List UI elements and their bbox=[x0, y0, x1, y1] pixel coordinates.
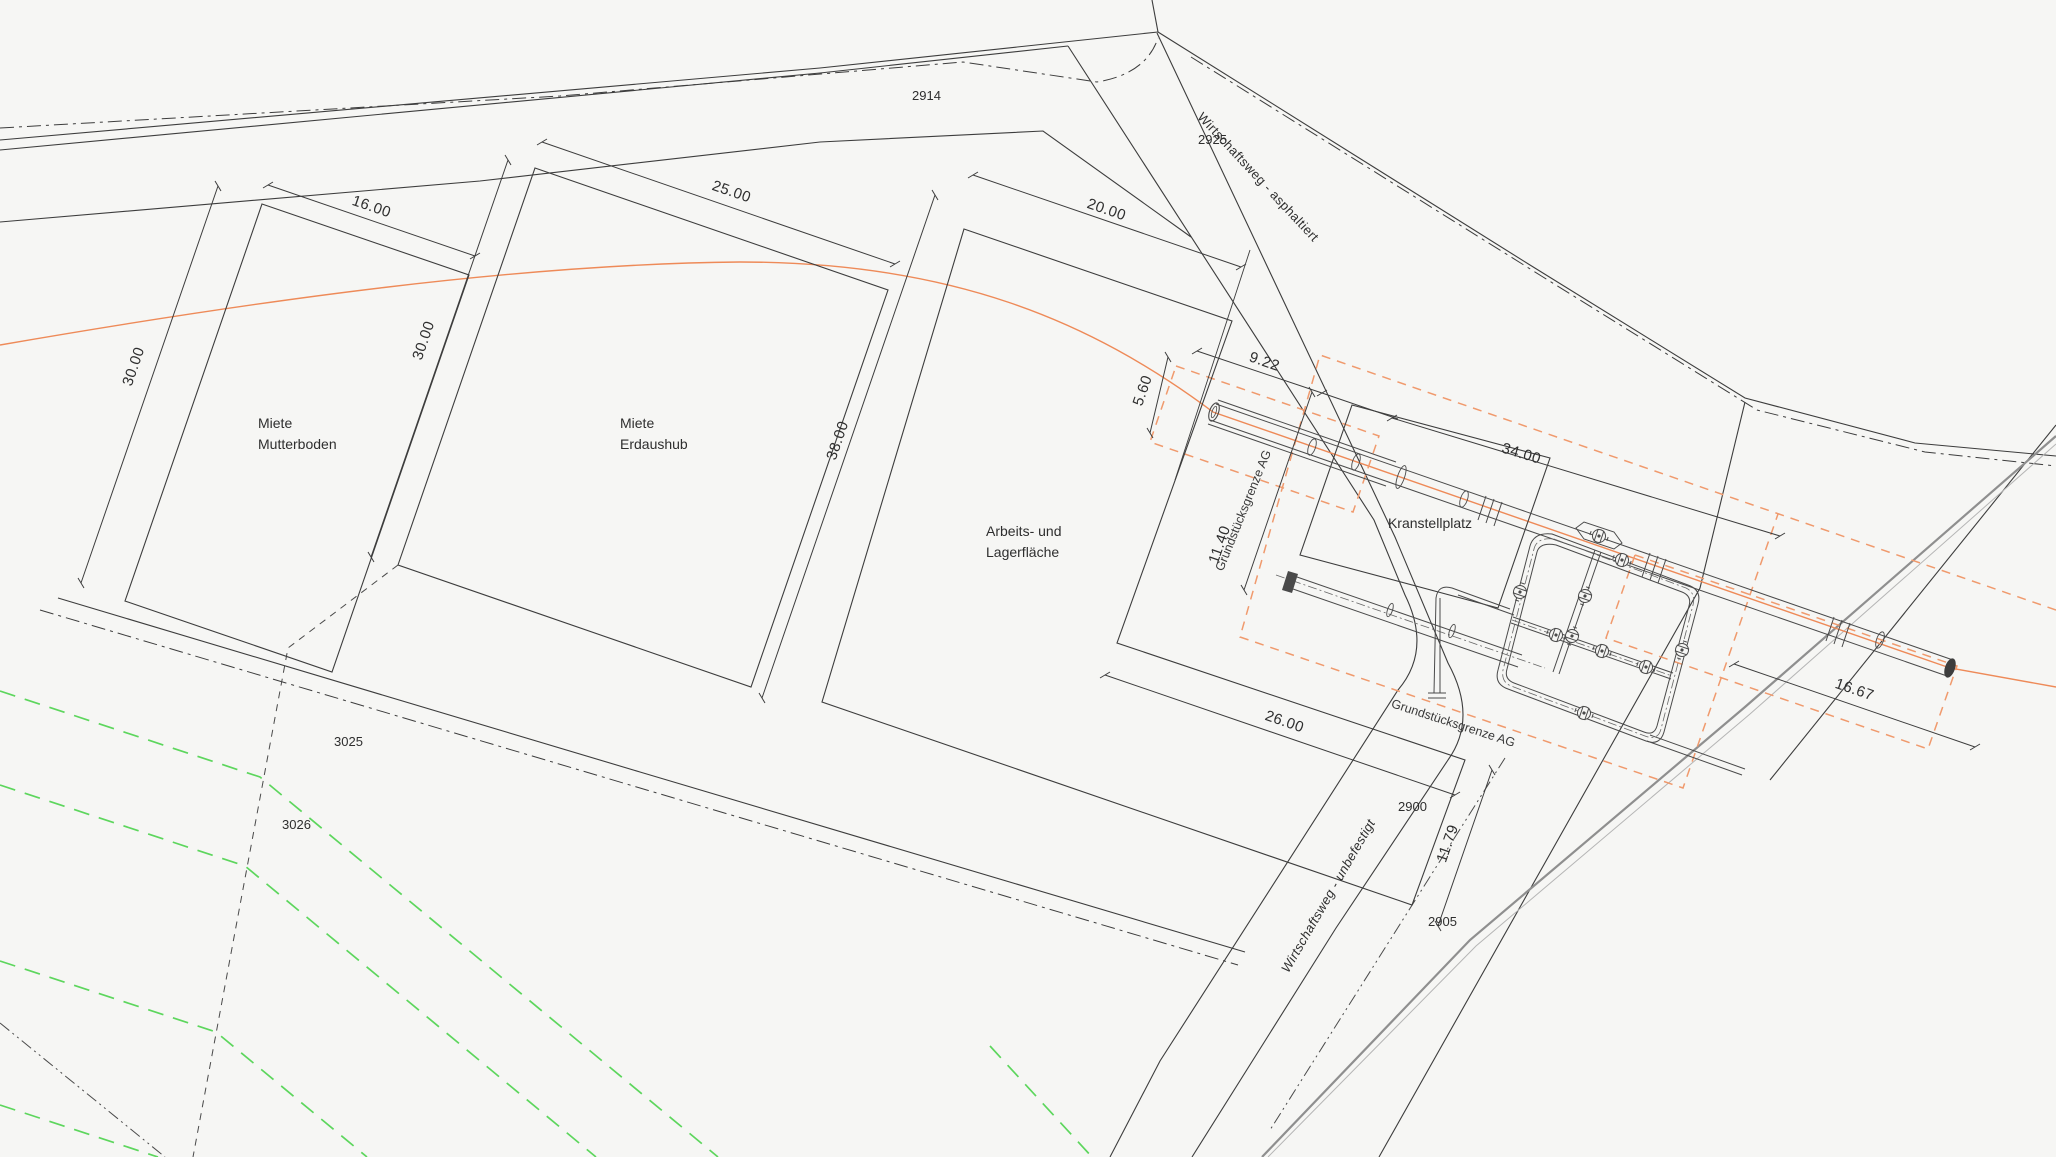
dim-label-560: 5.60 bbox=[1130, 373, 1156, 408]
boundaries bbox=[0, 0, 2056, 1157]
parcel-label-2905: 2905 bbox=[1428, 914, 1457, 929]
loop-inner bbox=[1506, 544, 1689, 733]
path-boundary-north bbox=[0, 32, 1158, 140]
boundary-north-of-areas bbox=[0, 131, 1191, 237]
pipe-small-edges bbox=[1293, 577, 1522, 667]
field-lines-green bbox=[0, 691, 1092, 1157]
dim-label-38: 38.00 bbox=[823, 419, 852, 462]
area-label-lager-line1: Arbeits- und bbox=[986, 523, 1061, 539]
dim-line-20 bbox=[968, 172, 1246, 270]
road-label-asphaltiert: Wirtschaftsweg - asphaltiert bbox=[1195, 109, 1323, 244]
parcel-label-3025: 3025 bbox=[334, 734, 363, 749]
stub-bottom-right bbox=[1647, 735, 1745, 775]
valve-icon bbox=[1576, 585, 1594, 606]
pipe-network bbox=[1428, 534, 1745, 775]
green-field-line bbox=[990, 1046, 1092, 1157]
dim-label-34: 34.00 bbox=[1500, 440, 1543, 468]
dim-label-30a: 30.00 bbox=[119, 345, 148, 388]
road-label-unbefestigt: Wirtschaftsweg - unbefestigt bbox=[1278, 816, 1379, 975]
cable-route-curve bbox=[0, 262, 2056, 687]
boundary-3025-3026 bbox=[193, 565, 398, 1157]
dim-label-1179: 11.79 bbox=[1433, 822, 1462, 864]
boundary-2925 bbox=[1158, 32, 2056, 456]
pipe-main-top-edge bbox=[1216, 404, 1953, 660]
green-field-line bbox=[0, 1105, 158, 1157]
labels: 2914 2925 3025 3026 2900 2905 Miete Mutt… bbox=[258, 88, 1517, 975]
area-label-lager-line2: Lagerfläche bbox=[986, 544, 1059, 560]
gray-pipeline bbox=[1262, 436, 2056, 1157]
dim-label-20: 20.00 bbox=[1085, 195, 1128, 224]
stub-left bbox=[1434, 587, 1514, 693]
dim-label-30b: 30.00 bbox=[409, 319, 438, 362]
gray-pipeline-line bbox=[1262, 436, 2056, 1157]
dim-line-38 bbox=[759, 190, 938, 703]
dim-line-26 bbox=[1100, 672, 1460, 798]
boundary-label-ag-south: Grundstücksgrenze AG bbox=[1390, 697, 1517, 750]
pipe-main bbox=[1207, 400, 1958, 679]
dim-label-16: 16.00 bbox=[350, 192, 393, 221]
branch-vertical bbox=[1553, 550, 1601, 674]
stub-left-flange bbox=[1428, 693, 1446, 698]
area-label-kranstellplatz: Kranstellplatz bbox=[1388, 515, 1472, 531]
parcel-label-2914: 2914 bbox=[912, 88, 941, 103]
parcel-label-2900: 2900 bbox=[1398, 799, 1427, 814]
dim-label-26: 26.00 bbox=[1263, 707, 1306, 736]
path-boundary-south bbox=[0, 46, 1068, 150]
dim-line-25 bbox=[537, 139, 900, 267]
pipe-small bbox=[1276, 571, 1545, 668]
dim-label-922: 9.22 bbox=[1247, 349, 1282, 375]
green-field-line bbox=[0, 785, 596, 1157]
boundary-sw-corner bbox=[0, 1023, 165, 1157]
boundary-top-spur bbox=[1152, 0, 1158, 32]
area-label-erdaushub-line2: Erdaushub bbox=[620, 436, 688, 452]
dim-line-30b bbox=[368, 155, 511, 562]
parcel-label-3026: 3026 bbox=[282, 817, 311, 832]
dim-line-922 bbox=[1192, 348, 1398, 419]
boundary-south-fields bbox=[58, 598, 1245, 952]
area-label-mutterboden-line1: Miete bbox=[258, 415, 292, 431]
area-label-mutterboden-line2: Mutterboden bbox=[258, 436, 337, 452]
green-field-line bbox=[0, 691, 718, 1157]
roads bbox=[1068, 33, 1463, 1157]
boundary-2925-dashdot bbox=[1191, 57, 2056, 466]
boundary-south-fields-dashdot bbox=[40, 610, 1238, 965]
dim-line-16 bbox=[263, 182, 480, 259]
boundary-east-diagonal bbox=[1770, 425, 2056, 780]
area-label-erdaushub-line1: Miete bbox=[620, 415, 654, 431]
green-field-line bbox=[0, 961, 367, 1157]
site-plan: 16.00 30.00 25.00 30.00 20.00 38.00 26.0… bbox=[0, 0, 2056, 1157]
path-boundary-dashdot bbox=[0, 38, 1158, 128]
area-lager-outline bbox=[822, 229, 1465, 905]
loop-outer bbox=[1497, 534, 1699, 743]
dim-line-560 bbox=[1147, 352, 1171, 438]
parcels-work-areas bbox=[125, 168, 1550, 905]
